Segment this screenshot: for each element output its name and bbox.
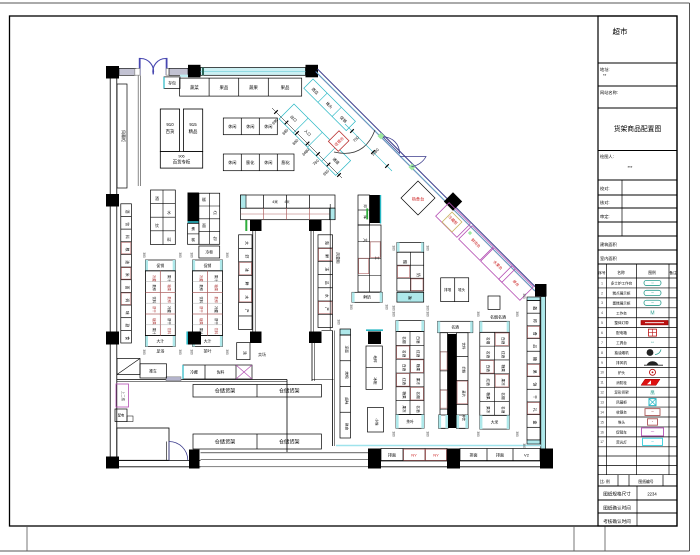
svg-text:糖果: 糖果 (486, 392, 491, 400)
svg-text:冷柜: 冷柜 (206, 250, 214, 255)
svg-text:名烟: 名烟 (416, 392, 421, 400)
svg-text:邓: 邓 (363, 204, 368, 208)
svg-text:堆头: 堆头 (458, 287, 466, 292)
svg-text:工具台: 工具台 (616, 340, 627, 345)
svg-text:百货专柜: 百货专柜 (173, 159, 191, 166)
svg-text:蔬菜: 蔬菜 (190, 84, 199, 91)
svg-text:蛋: 蛋 (191, 226, 195, 231)
svg-text:380: 380 (190, 349, 194, 355)
svg-text:整体灯带: 整体灯带 (614, 320, 629, 325)
svg-text:卖场: 卖场 (258, 351, 266, 357)
svg-text:名烟: 名烟 (402, 336, 407, 344)
svg-text:排面: 排面 (496, 451, 504, 457)
svg-text:休闲: 休闲 (228, 123, 236, 130)
svg-text:糖果: 糖果 (402, 392, 407, 400)
svg-text:虾: 虾 (244, 255, 249, 259)
svg-text:910: 910 (166, 122, 174, 127)
svg-text:NY: NY (433, 453, 439, 458)
svg-text:仓储货架: 仓储货架 (279, 437, 300, 445)
svg-text:促销: 促销 (204, 263, 212, 268)
svg-text:糖果: 糖果 (214, 285, 219, 292)
svg-text:8: 8 (601, 351, 603, 355)
svg-text:奶: 奶 (416, 273, 421, 277)
svg-text:***: *** (628, 165, 633, 170)
svg-text:配电箱: 配电箱 (616, 330, 627, 335)
svg-text:调: 调 (125, 298, 130, 302)
svg-text:仓储货架: 仓储货架 (215, 387, 236, 395)
svg-text:饮料: 饮料 (167, 328, 172, 335)
svg-text:白酒: 白酒 (501, 337, 506, 345)
svg-text:烤鸭: 烤鸭 (344, 371, 349, 379)
svg-text:糕: 糕 (191, 237, 195, 242)
svg-text:10: 10 (600, 371, 604, 375)
svg-text:料: 料 (125, 235, 130, 239)
svg-text:4米: 4米 (272, 199, 278, 204)
svg-text:9: 9 (601, 361, 603, 365)
svg-text:果: 果 (533, 370, 538, 374)
svg-text:绘图人:: 绘图人: (600, 153, 614, 160)
svg-text:红酒: 红酒 (416, 350, 421, 358)
svg-text:糕点展示柜: 糕点展示柜 (613, 290, 631, 295)
svg-text:比: 例: 比: 例 (600, 479, 610, 484)
svg-text:鲜: 鲜 (408, 296, 412, 301)
svg-text:排风机: 排风机 (616, 360, 627, 365)
svg-text:校对:: 校对: (600, 185, 610, 192)
svg-text:散称: 散称 (199, 285, 204, 292)
svg-text:果汁: 果汁 (167, 275, 172, 282)
svg-text:果汁: 果汁 (152, 328, 157, 335)
svg-text:5: 5 (601, 321, 603, 325)
svg-text:工作台: 工作台 (616, 310, 627, 315)
svg-text:油: 油 (125, 260, 130, 264)
svg-text:足浴: 足浴 (156, 347, 164, 353)
svg-text:NY: NY (411, 453, 417, 458)
svg-text:4: 4 (601, 311, 603, 315)
svg-text:冰: 冰 (244, 268, 249, 272)
svg-text:冷藏: 冷藏 (199, 275, 204, 282)
svg-text:果冻: 果冻 (416, 378, 421, 386)
svg-text:序号: 序号 (598, 270, 606, 275)
svg-text:红酒: 红酒 (501, 351, 506, 359)
svg-text:380: 380 (515, 311, 519, 317)
svg-text:干: 干 (533, 395, 537, 399)
svg-text:酒: 酒 (155, 196, 159, 201)
svg-text:休闲: 休闲 (264, 123, 272, 130)
svg-text:蛋糕展示柜: 蛋糕展示柜 (613, 300, 631, 305)
svg-text:名称: 名称 (617, 270, 625, 275)
svg-text:380: 380 (426, 245, 430, 251)
svg-text:糕: 糕 (202, 197, 206, 202)
svg-text:糖果: 糖果 (416, 364, 421, 372)
svg-text:白酒: 白酒 (486, 365, 491, 373)
svg-text:风幕柜: 风幕柜 (336, 252, 341, 264)
svg-text:M: M (650, 311, 654, 317)
svg-text:面: 面 (202, 223, 206, 228)
svg-text:380: 380 (142, 349, 146, 355)
svg-text:上二楼: 上二楼 (121, 391, 126, 402)
svg-text:地址:: 地址: (600, 66, 610, 72)
svg-text:名酒: 名酒 (486, 351, 491, 359)
svg-text:6: 6 (601, 331, 603, 335)
svg-text:380: 380 (392, 431, 396, 437)
svg-text:推车: 推车 (149, 369, 157, 374)
svg-text:水: 水 (244, 295, 249, 299)
svg-text:食: 食 (125, 336, 130, 340)
svg-text:糖果: 糖果 (167, 285, 172, 292)
svg-text:380: 380 (225, 349, 229, 355)
svg-text:收银台: 收银台 (616, 410, 627, 415)
svg-text:名烟: 名烟 (501, 392, 506, 400)
svg-text:糖果: 糖果 (199, 318, 204, 325)
svg-text:2234: 2234 (647, 492, 657, 497)
svg-text:水: 水 (324, 294, 329, 298)
svg-text:卤味: 卤味 (344, 397, 349, 405)
svg-text:鲜: 鲜 (244, 282, 249, 286)
svg-text:包: 包 (213, 236, 217, 241)
svg-text:米: 米 (125, 273, 130, 277)
svg-text:380: 380 (337, 319, 341, 325)
svg-text:图纸确认时间: 图纸确认时间 (603, 505, 631, 512)
svg-text:380: 380 (476, 431, 480, 437)
svg-text:佐料: 佐料 (217, 369, 225, 374)
svg-text:冰柜: 冰柜 (373, 377, 378, 385)
svg-text:促销: 促销 (157, 263, 165, 268)
svg-text:红酒: 红酒 (402, 378, 407, 386)
svg-text:14: 14 (600, 410, 604, 414)
svg-text:茶叶: 茶叶 (204, 347, 212, 353)
svg-text:礼: 礼 (533, 408, 538, 412)
svg-text:排面: 排面 (388, 451, 396, 457)
svg-text:抽油烟机: 抽油烟机 (614, 350, 629, 355)
svg-text:考核确认时间: 考核确认时间 (603, 518, 631, 525)
svg-text:380: 380 (225, 252, 229, 258)
svg-text:16: 16 (600, 430, 604, 434)
svg-text:休闲: 休闲 (246, 123, 254, 130)
svg-text:饼干: 饼干 (167, 318, 172, 325)
svg-text:380: 380 (142, 252, 146, 258)
svg-text:料: 料 (167, 237, 171, 242)
svg-text:配电: 配电 (118, 413, 125, 418)
svg-text:名烟名酒: 名烟名酒 (490, 314, 506, 320)
svg-text:大米: 大米 (491, 420, 499, 425)
svg-text:大: 大 (244, 241, 249, 245)
svg-text:室内面积: 室内面积 (600, 255, 617, 262)
svg-text:风幕柜: 风幕柜 (121, 130, 127, 142)
svg-text:茶叶: 茶叶 (406, 419, 414, 424)
svg-text:风幕柜: 风幕柜 (616, 400, 627, 405)
svg-text:图纸规格尺寸: 图纸规格尺寸 (603, 491, 631, 498)
svg-text:15: 15 (600, 420, 604, 424)
svg-text:食: 食 (533, 332, 538, 336)
svg-text:饼干: 饼干 (152, 306, 157, 313)
svg-text:7: 7 (601, 341, 603, 345)
svg-text:名酒: 名酒 (402, 350, 407, 358)
svg-text:380: 380 (426, 431, 430, 437)
svg-text:产: 产 (244, 309, 249, 313)
svg-text:图例: 图例 (648, 270, 656, 275)
svg-text:大汁: 大汁 (204, 338, 212, 343)
svg-text:果冻: 果冻 (402, 405, 407, 413)
svg-text:2: 2 (601, 291, 603, 295)
svg-text:小堆: 小堆 (375, 418, 380, 426)
svg-text:鲜: 鲜 (324, 254, 329, 258)
svg-text:果冻: 果冻 (486, 406, 491, 414)
svg-text:海: 海 (324, 241, 329, 245)
svg-text:存包: 存包 (168, 81, 176, 86)
svg-text:饮料: 饮料 (152, 297, 157, 304)
svg-text:排面: 排面 (470, 451, 478, 457)
svg-text:酸: 酸 (403, 260, 408, 264)
svg-text:荧光灯: 荧光灯 (616, 439, 627, 444)
svg-text:380: 380 (392, 245, 396, 251)
svg-text:堆头: 堆头 (618, 419, 626, 424)
svg-text:名酒: 名酒 (501, 406, 506, 414)
svg-text:名烟: 名烟 (486, 337, 491, 345)
svg-text:冷藏: 冷藏 (152, 275, 157, 282)
svg-text:多士炉工作台: 多士炉工作台 (611, 280, 633, 285)
svg-text:12: 12 (600, 391, 604, 395)
svg-text:1: 1 (601, 281, 603, 285)
svg-text:380: 380 (178, 252, 182, 258)
svg-text:380: 380 (190, 252, 194, 258)
svg-text:审定:: 审定: (600, 213, 610, 220)
svg-text:380: 380 (178, 349, 182, 355)
svg-text:380: 380 (385, 304, 389, 310)
svg-text:味: 味 (125, 311, 130, 315)
svg-text:麦片: 麦片 (461, 390, 466, 397)
svg-text:17: 17 (600, 440, 604, 444)
svg-text:地秤: 地秤 (373, 355, 378, 363)
svg-text:**: ** (603, 73, 607, 78)
svg-text:红酒: 红酒 (486, 379, 491, 387)
svg-text:饮: 饮 (155, 223, 159, 228)
svg-text:饮料: 饮料 (461, 343, 466, 350)
svg-text:百货: 百货 (166, 128, 175, 135)
svg-text:熟食台: 熟食台 (412, 196, 425, 203)
svg-text:3: 3 (601, 301, 603, 305)
svg-text:仓储货架: 仓储货架 (279, 387, 300, 395)
svg-text:熟食: 熟食 (344, 423, 349, 431)
svg-text:品: 品 (324, 281, 329, 285)
svg-text:4米: 4米 (284, 199, 290, 204)
svg-text:白酒: 白酒 (416, 336, 421, 344)
svg-text:380: 380 (515, 431, 519, 437)
svg-text:饼干: 饼干 (214, 318, 219, 325)
svg-text:点: 点 (213, 210, 217, 215)
svg-text:休闲: 休闲 (228, 159, 236, 166)
svg-text:膨化: 膨化 (246, 159, 255, 166)
svg-text:名酒: 名酒 (451, 324, 459, 329)
svg-text:产: 产 (324, 307, 329, 311)
svg-text:13: 13 (600, 401, 604, 405)
svg-text:称: 称 (533, 319, 538, 323)
svg-text:核对:: 核对: (600, 199, 610, 206)
svg-text:仓储货架: 仓储货架 (215, 437, 236, 445)
svg-text:品: 品 (533, 344, 538, 348)
svg-text:380: 380 (522, 293, 526, 299)
svg-text:散: 散 (533, 306, 538, 310)
svg-text:饼干: 饼干 (199, 306, 204, 313)
svg-text:饮料: 饮料 (199, 297, 204, 304)
svg-text:915: 915 (189, 122, 197, 127)
svg-text:380: 380 (392, 311, 396, 317)
svg-text:380: 380 (349, 304, 353, 310)
svg-text:380: 380 (426, 311, 430, 317)
svg-text:排堆: 排堆 (444, 287, 452, 292)
svg-text:货架商品配置图: 货架商品配置图 (614, 124, 662, 133)
svg-text:备注: 备注 (669, 270, 677, 275)
svg-text:盒: 盒 (533, 421, 538, 425)
svg-text:休闲: 休闲 (264, 159, 272, 166)
svg-text:凉面: 凉面 (344, 346, 349, 354)
svg-text:906: 906 (178, 155, 184, 159)
svg-text:奶粉: 奶粉 (461, 366, 466, 373)
svg-text:精品: 精品 (189, 128, 198, 135)
svg-text:380: 380 (392, 305, 396, 311)
svg-text:鲜奶: 鲜奶 (363, 295, 371, 300)
svg-text:果冻: 果冻 (501, 379, 506, 387)
svg-text:果汁: 果汁 (214, 275, 219, 282)
svg-text:水: 水 (167, 210, 171, 215)
svg-text:糖果: 糖果 (152, 318, 157, 325)
svg-text:380: 380 (476, 311, 480, 317)
svg-text:大: 大 (363, 238, 368, 242)
svg-text:图纸编号: 图纸编号 (638, 479, 653, 484)
svg-text:膨化: 膨化 (281, 159, 290, 166)
svg-text:粮: 粮 (125, 248, 130, 252)
svg-text:散称: 散称 (152, 285, 157, 292)
svg-text:建筑面积: 建筑面积 (600, 241, 617, 248)
svg-text:糖果: 糖果 (501, 365, 506, 373)
svg-text:网站名称:: 网站名称: (600, 89, 618, 96)
svg-text:白酒: 白酒 (402, 364, 407, 372)
svg-text:380: 380 (426, 305, 430, 311)
svg-text:散称: 散称 (214, 297, 219, 304)
svg-text:大汁: 大汁 (157, 338, 165, 343)
svg-text:蔬果: 蔬果 (249, 84, 258, 91)
svg-text:泳: 泳 (242, 351, 247, 355)
svg-text:冷藏: 冷藏 (214, 306, 219, 313)
svg-text:工: 工 (374, 256, 378, 260)
svg-text:糖: 糖 (533, 357, 538, 361)
svg-text:V2: V2 (524, 452, 530, 457)
svg-text:饮料: 饮料 (214, 328, 219, 335)
svg-text:炉头: 炉头 (618, 370, 626, 375)
svg-text:饼: 饼 (533, 382, 538, 386)
svg-text:副: 副 (125, 324, 130, 328)
svg-text:超市: 超市 (613, 26, 628, 36)
svg-text:散称: 散称 (167, 297, 172, 304)
svg-text:消防栓: 消防栓 (616, 380, 627, 385)
svg-text:冷藏: 冷藏 (167, 306, 172, 313)
svg-text:380: 380 (522, 443, 526, 449)
svg-text:名酒: 名酒 (416, 405, 421, 413)
svg-text:异形货架: 异形货架 (614, 390, 629, 395)
svg-text:冷藏: 冷藏 (190, 369, 198, 374)
svg-text:面: 面 (125, 286, 130, 290)
svg-text:促销车: 促销车 (616, 429, 627, 434)
svg-text:11: 11 (600, 381, 604, 385)
svg-text:冻: 冻 (324, 267, 329, 271)
